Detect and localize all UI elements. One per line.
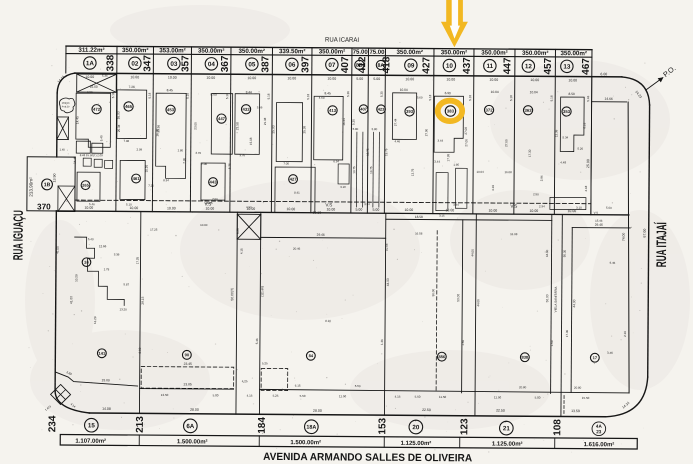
svg-text:5.18: 5.18 [306, 93, 310, 99]
svg-text:427: 427 [290, 177, 298, 182]
svg-text:29.15: 29.15 [141, 296, 145, 304]
svg-text:13.75: 13.75 [369, 166, 373, 174]
svg-text:10.00: 10.00 [489, 78, 498, 82]
svg-text:5.30: 5.30 [351, 119, 355, 125]
svg-text:465: 465 [125, 104, 133, 109]
svg-text:213.90m²: 213.90m² [28, 177, 33, 197]
svg-text:108: 108 [552, 419, 563, 436]
svg-text:427: 427 [421, 57, 432, 74]
svg-text:5.80: 5.80 [372, 127, 378, 131]
svg-text:372: 372 [486, 107, 494, 112]
svg-text:(111.60): (111.60) [260, 286, 264, 297]
svg-text:8.18: 8.18 [582, 122, 586, 128]
svg-text:10.04: 10.04 [491, 90, 499, 94]
svg-text:14.45: 14.45 [73, 156, 77, 164]
svg-text:8.50: 8.50 [569, 92, 575, 96]
svg-text:10.04: 10.04 [400, 88, 408, 92]
svg-text:2.00: 2.00 [138, 347, 142, 353]
svg-text:3.66: 3.66 [257, 105, 263, 109]
svg-text:5.00: 5.00 [372, 208, 379, 212]
svg-text:29.46: 29.46 [595, 223, 603, 227]
svg-text:7.00: 7.00 [212, 197, 218, 201]
svg-text:447: 447 [218, 116, 226, 121]
svg-text:472: 472 [93, 107, 101, 112]
svg-text:1.80: 1.80 [177, 148, 183, 152]
svg-text:5.00: 5.00 [373, 77, 380, 81]
svg-text:5.26: 5.26 [577, 147, 583, 151]
svg-text:20.80: 20.80 [574, 386, 582, 390]
svg-text:4.60: 4.60 [319, 96, 325, 100]
svg-text:413: 413 [329, 108, 337, 113]
svg-text:5.60: 5.60 [417, 95, 423, 99]
svg-text:50.00: 50.00 [431, 288, 435, 296]
svg-text:05: 05 [248, 61, 256, 68]
svg-text:7.30: 7.30 [182, 158, 186, 164]
svg-text:10.00: 10.00 [247, 76, 256, 80]
svg-text:5.18: 5.18 [428, 94, 432, 100]
svg-text:412: 412 [357, 56, 368, 73]
svg-text:5.18: 5.18 [509, 95, 513, 101]
svg-text:17.38: 17.38 [446, 154, 450, 162]
svg-text:3.15: 3.15 [439, 214, 445, 218]
svg-text:8.41: 8.41 [294, 191, 300, 195]
svg-text:75.00: 75.00 [369, 50, 385, 56]
svg-text:5.34: 5.34 [563, 135, 569, 139]
svg-text:6A: 6A [186, 423, 194, 430]
svg-text:27.00: 27.00 [424, 128, 428, 136]
svg-text:09: 09 [407, 62, 415, 69]
svg-text:2.94: 2.94 [540, 175, 544, 181]
svg-text:5.46: 5.46 [255, 338, 259, 344]
svg-text:5.43: 5.43 [88, 237, 94, 241]
svg-text:5.10: 5.10 [126, 202, 132, 206]
svg-text:10.00: 10.00 [405, 77, 414, 81]
svg-text:15.75: 15.75 [384, 148, 388, 156]
svg-text:3.44: 3.44 [434, 160, 440, 164]
svg-text:1.95: 1.95 [453, 163, 459, 167]
svg-text:6.15: 6.15 [295, 384, 301, 388]
svg-text:27.44: 27.44 [393, 118, 397, 126]
svg-text:23.58: 23.58 [235, 122, 239, 130]
svg-text:16.08: 16.08 [510, 232, 518, 236]
svg-text:25.38: 25.38 [302, 126, 306, 134]
svg-text:20: 20 [412, 424, 419, 431]
svg-text:15.00: 15.00 [102, 378, 110, 382]
svg-text:02: 02 [131, 61, 139, 68]
svg-text:4.46: 4.46 [395, 139, 401, 143]
svg-text:3.34: 3.34 [364, 202, 370, 206]
svg-text:3.10: 3.10 [340, 185, 346, 189]
svg-text:16.44: 16.44 [342, 118, 346, 126]
svg-text:5.46: 5.46 [586, 95, 590, 101]
svg-text:23.85: 23.85 [205, 201, 213, 205]
svg-text:1.125.00m²: 1.125.00m² [492, 441, 523, 448]
svg-text:18A: 18A [306, 425, 316, 431]
svg-text:14.08: 14.08 [102, 407, 111, 411]
svg-text:5.50: 5.50 [415, 395, 421, 399]
svg-text:5.46: 5.46 [610, 261, 616, 265]
svg-text:437: 437 [462, 57, 473, 74]
svg-text:13.90: 13.90 [53, 173, 57, 182]
svg-text:VIELA SANITÁRIA: VIELA SANITÁRIA [554, 286, 558, 313]
svg-text:6.00: 6.00 [600, 72, 607, 76]
svg-text:5.18: 5.18 [186, 93, 190, 99]
svg-text:15.50: 15.50 [582, 396, 590, 400]
svg-text:141: 141 [98, 351, 105, 356]
svg-text:3.44: 3.44 [246, 90, 252, 94]
svg-text:10.00: 10.00 [286, 207, 295, 211]
svg-text:15.46: 15.46 [595, 219, 603, 223]
svg-text:44.00: 44.00 [476, 299, 480, 307]
svg-text:370: 370 [37, 202, 51, 211]
svg-text:11.50: 11.50 [494, 395, 502, 399]
svg-text:V.S: V.S [594, 211, 598, 215]
svg-text:2.16: 2.16 [623, 331, 627, 337]
svg-text:50.30: 50.30 [563, 249, 567, 257]
svg-text:10.58: 10.58 [385, 243, 389, 251]
svg-text:350.00m²: 350.00m² [238, 48, 265, 55]
svg-text:6.90: 6.90 [445, 91, 451, 95]
svg-text:8.43 15.50(T) 2.09: 8.43 15.50(T) 2.09 [80, 153, 103, 157]
svg-text:P: P [505, 420, 507, 424]
svg-text:22.50: 22.50 [496, 409, 505, 413]
svg-text:8.34: 8.34 [163, 178, 169, 182]
svg-text:10.00: 10.00 [530, 78, 539, 82]
svg-text:03: 03 [170, 61, 178, 68]
svg-text:3.36: 3.36 [114, 252, 120, 256]
svg-text:1.78: 1.78 [104, 267, 110, 271]
svg-text:10.00: 10.00 [129, 206, 138, 210]
svg-text:AVENIDA ARMANDO SALLES DE OLIV: AVENIDA ARMANDO SALLES DE OLIVEIRA [263, 451, 472, 464]
svg-text:5.00: 5.00 [213, 393, 219, 397]
svg-text:367: 367 [220, 55, 231, 72]
svg-text:393: 393 [406, 109, 414, 114]
svg-text:14.45: 14.45 [75, 116, 79, 124]
svg-text:433: 433 [243, 107, 251, 112]
svg-text:10.00: 10.00 [488, 209, 497, 213]
svg-text:8.45: 8.45 [167, 88, 173, 92]
svg-text:461: 461 [133, 176, 141, 181]
svg-text:V.S: V.S [510, 204, 517, 209]
svg-text:443: 443 [210, 180, 218, 185]
svg-text:4.15: 4.15 [247, 394, 253, 398]
svg-text:407: 407 [340, 56, 351, 73]
svg-text:28.00: 28.00 [313, 409, 322, 413]
svg-text:4.48: 4.48 [560, 160, 566, 164]
svg-text:8.05: 8.05 [211, 93, 217, 97]
svg-text:350.00m²: 350.00m² [396, 49, 423, 56]
svg-text:3.76: 3.76 [195, 151, 201, 155]
svg-text:5.50: 5.50 [300, 394, 306, 398]
svg-text:10.00: 10.00 [130, 75, 139, 79]
svg-text:5.00: 5.00 [356, 77, 363, 81]
svg-text:7.05: 7.05 [283, 162, 289, 166]
svg-text:10.00: 10.00 [167, 206, 176, 210]
svg-text:RUA ICARAI: RUA ICARAI [325, 37, 359, 44]
svg-text:12.36: 12.36 [554, 129, 558, 137]
svg-text:2.09: 2.09 [136, 148, 142, 152]
svg-text:74.00: 74.00 [622, 233, 626, 242]
svg-text:7.26: 7.26 [129, 85, 135, 89]
svg-text:5.46: 5.46 [89, 202, 95, 206]
svg-text:25.58: 25.58 [156, 125, 160, 133]
svg-text:8.45: 8.45 [325, 91, 331, 95]
svg-text:13.50: 13.50 [161, 393, 169, 397]
svg-text:12.66: 12.66 [99, 244, 107, 248]
svg-text:350.00m²: 350.00m² [198, 48, 225, 55]
svg-text:44.00: 44.00 [386, 278, 390, 286]
svg-text:10.29: 10.29 [74, 274, 78, 282]
svg-text:457: 457 [543, 57, 554, 74]
svg-text:5.00: 5.00 [535, 396, 541, 400]
svg-text:17.25: 17.25 [135, 256, 139, 264]
svg-text:5.00: 5.00 [355, 208, 362, 212]
svg-text:13: 13 [563, 64, 571, 71]
svg-text:23.45: 23.45 [184, 362, 192, 366]
svg-text:353: 353 [563, 109, 571, 114]
svg-text:5.30: 5.30 [380, 91, 384, 97]
svg-text:50.00: 50.00 [456, 294, 460, 302]
svg-text:29.46: 29.46 [317, 233, 325, 237]
svg-text:11.50: 11.50 [439, 395, 447, 399]
svg-text:21: 21 [503, 425, 510, 432]
svg-text:1.107.00m²: 1.107.00m² [75, 438, 106, 445]
svg-text:4.19: 4.19 [491, 185, 495, 191]
svg-text:15.08: 15.08 [249, 137, 253, 145]
svg-text:6.34: 6.34 [333, 159, 339, 163]
svg-text:1.616.00m²: 1.616.00m² [584, 441, 615, 448]
svg-text:1.50: 1.50 [550, 340, 554, 346]
svg-text:13.75: 13.75 [411, 168, 415, 176]
svg-text:3.10: 3.10 [576, 206, 582, 210]
svg-text:18.58: 18.58 [415, 215, 423, 219]
svg-text:10.04: 10.04 [530, 90, 538, 94]
svg-text:350.00m²: 350.00m² [481, 50, 508, 57]
svg-text:13.20: 13.20 [120, 307, 128, 311]
svg-text:5.25: 5.25 [262, 361, 268, 365]
svg-text:14.66: 14.66 [604, 97, 612, 101]
svg-text:5.00: 5.00 [606, 206, 612, 210]
svg-text:311.22m²: 311.22m² [78, 47, 104, 54]
svg-text:3.46: 3.46 [607, 351, 613, 355]
svg-text:350.00m²: 350.00m² [560, 50, 587, 57]
svg-text:28.00: 28.00 [190, 408, 199, 412]
svg-text:44.00: 44.00 [471, 249, 475, 257]
svg-text:383: 383 [447, 108, 455, 113]
svg-text:447: 447 [502, 57, 513, 74]
svg-text:1.50: 1.50 [461, 340, 465, 346]
svg-text:363: 363 [525, 108, 533, 113]
svg-text:4.15: 4.15 [395, 395, 401, 399]
svg-text:10.00: 10.00 [568, 78, 577, 82]
svg-text:1.45: 1.45 [60, 147, 66, 151]
svg-text:13.59: 13.59 [571, 409, 580, 413]
svg-text:1A: 1A [86, 60, 95, 67]
svg-text:353.00m²: 353.00m² [159, 47, 186, 54]
svg-text:1.500.00m²: 1.500.00m² [177, 438, 208, 445]
svg-text:5.18: 5.18 [148, 92, 152, 98]
svg-text:4.98: 4.98 [87, 90, 93, 94]
svg-text:838: 838 [521, 355, 528, 360]
svg-text:67.00: 67.00 [643, 229, 647, 238]
svg-text:17.25: 17.25 [150, 228, 158, 232]
svg-text:350.00m²: 350.00m² [319, 48, 346, 55]
svg-text:25.00: 25.00 [586, 159, 590, 168]
svg-text:397: 397 [300, 56, 311, 73]
svg-text:4.48: 4.48 [584, 185, 588, 191]
svg-text:7.26: 7.26 [148, 184, 154, 188]
svg-text:5.18: 5.18 [550, 95, 554, 101]
svg-text:350.00m²: 350.00m² [122, 47, 149, 54]
svg-text:RUA IGUAÇU: RUA IGUAÇU [11, 210, 26, 260]
svg-text:27.00: 27.00 [504, 139, 508, 147]
svg-text:3.44: 3.44 [438, 139, 444, 143]
svg-text:10.00: 10.00 [168, 76, 177, 80]
svg-text:10.00: 10.00 [404, 208, 413, 212]
svg-text:2.94: 2.94 [539, 204, 545, 208]
svg-text:1B: 1B [44, 182, 51, 188]
svg-text:1.46: 1.46 [380, 339, 384, 345]
svg-text:16.00: 16.00 [90, 85, 98, 89]
svg-text:16.29: 16.29 [93, 316, 97, 324]
svg-text:347: 347 [142, 55, 153, 72]
svg-text:RUA ITAJAÍ: RUA ITAJAÍ [653, 221, 669, 267]
svg-text:44.00: 44.00 [572, 299, 576, 307]
svg-text:21.38: 21.38 [263, 117, 267, 125]
svg-text:17.30: 17.30 [528, 149, 532, 157]
svg-text:2.50: 2.50 [533, 192, 539, 196]
svg-text:5.18: 5.18 [267, 93, 271, 99]
svg-text:4.50: 4.50 [246, 205, 252, 209]
svg-text:4.15: 4.15 [240, 248, 244, 254]
svg-text:23.00: 23.00 [193, 122, 197, 130]
svg-text:7.08: 7.08 [124, 139, 130, 143]
svg-text:04: 04 [208, 61, 216, 68]
svg-text:16.00: 16.00 [116, 111, 120, 119]
svg-text:5.18: 5.18 [225, 93, 229, 99]
svg-text:5.25: 5.25 [273, 394, 279, 398]
svg-text:20.80: 20.80 [519, 385, 527, 389]
svg-text:5.36: 5.36 [102, 74, 108, 78]
svg-text:50.00: 50.00 [545, 294, 549, 302]
svg-text:423: 423 [378, 107, 385, 112]
svg-text:4.25: 4.25 [242, 379, 248, 383]
svg-text:27.00: 27.00 [464, 139, 468, 147]
svg-text:10.00: 10.00 [287, 76, 296, 80]
svg-text:23: 23 [596, 429, 602, 434]
svg-text:5.30: 5.30 [346, 91, 350, 97]
svg-text:10.00: 10.00 [84, 206, 93, 210]
svg-text:15: 15 [88, 422, 95, 429]
svg-text:P: P [415, 418, 417, 422]
svg-text:P=8,50: P=8,50 [62, 105, 70, 108]
svg-text:5.18: 5.18 [111, 92, 115, 98]
svg-text:418: 418 [381, 56, 392, 73]
svg-text:10.00: 10.00 [327, 77, 336, 81]
svg-text:10: 10 [446, 63, 454, 70]
svg-text:12: 12 [525, 63, 533, 70]
svg-text:17.30: 17.30 [565, 329, 569, 337]
svg-text:16.58: 16.58 [415, 231, 423, 235]
svg-text:357: 357 [180, 55, 191, 72]
svg-text:407: 407 [360, 107, 367, 112]
svg-text:15.75: 15.75 [366, 148, 370, 156]
svg-text:07: 07 [328, 62, 336, 69]
svg-text:338: 338 [105, 54, 116, 71]
svg-text:856: 856 [438, 354, 445, 359]
svg-text:16.08: 16.08 [504, 170, 512, 174]
svg-text:POÇO: POÇO [62, 101, 70, 105]
svg-text:27.08: 27.08 [464, 127, 468, 135]
svg-text:350.00m²: 350.00m² [522, 50, 549, 57]
svg-text:234: 234 [47, 415, 58, 432]
svg-text:184: 184 [257, 417, 268, 434]
svg-text:10.25: 10.25 [145, 164, 149, 172]
svg-text:5.75: 5.75 [228, 163, 232, 169]
svg-text:453: 453 [167, 107, 175, 112]
svg-text:11: 11 [487, 63, 494, 70]
svg-text:13.75: 13.75 [352, 166, 356, 174]
svg-text:467: 467 [581, 58, 592, 75]
svg-text:123: 123 [459, 418, 470, 435]
svg-text:75.00: 75.00 [353, 50, 369, 56]
svg-text:7.00: 7.00 [201, 162, 207, 166]
svg-text:10.00: 10.00 [529, 209, 538, 213]
svg-text:41.00: 41.00 [56, 246, 60, 254]
svg-text:10.00: 10.00 [205, 207, 214, 211]
svg-text:5.80: 5.80 [353, 127, 359, 131]
svg-text:350.00m²: 350.00m² [441, 49, 468, 56]
svg-text:153: 153 [377, 417, 388, 434]
svg-text:3.44: 3.44 [453, 203, 459, 207]
svg-text:5.40: 5.40 [99, 135, 103, 141]
svg-text:11.50: 11.50 [339, 394, 347, 398]
svg-text:44.00: 44.00 [545, 249, 549, 257]
svg-text:265: 265 [82, 183, 89, 188]
svg-text:23.85: 23.85 [183, 382, 191, 386]
svg-text:1.500.00m²: 1.500.00m² [290, 439, 321, 446]
svg-text:20.46: 20.46 [293, 247, 301, 251]
svg-text:25.00: 25.00 [271, 125, 275, 133]
svg-text:10.00: 10.00 [200, 223, 208, 227]
svg-text:50.00(T): 50.00(T) [230, 288, 234, 301]
svg-text:1.125.00m²: 1.125.00m² [401, 440, 432, 447]
svg-text:25.38: 25.38 [117, 124, 121, 132]
svg-text:10.00: 10.00 [206, 76, 215, 80]
svg-text:10.00: 10.00 [445, 208, 454, 212]
svg-text:22.50: 22.50 [422, 408, 431, 412]
svg-text:5.87: 5.87 [124, 282, 130, 286]
svg-text:10.00: 10.00 [446, 77, 455, 81]
svg-text:10.64: 10.64 [477, 170, 485, 174]
svg-text:3.76: 3.76 [239, 153, 245, 157]
svg-text:41.00: 41.00 [69, 296, 73, 304]
svg-text:4A: 4A [596, 424, 603, 429]
svg-text:06: 06 [288, 62, 296, 69]
svg-text:5.50: 5.50 [355, 384, 361, 388]
svg-text:387: 387 [260, 55, 271, 72]
svg-text:5.18: 5.18 [468, 95, 472, 101]
svg-text:10.00: 10.00 [326, 207, 335, 211]
svg-text:6.25: 6.25 [236, 228, 240, 234]
svg-text:339.50m²: 339.50m² [279, 48, 306, 55]
